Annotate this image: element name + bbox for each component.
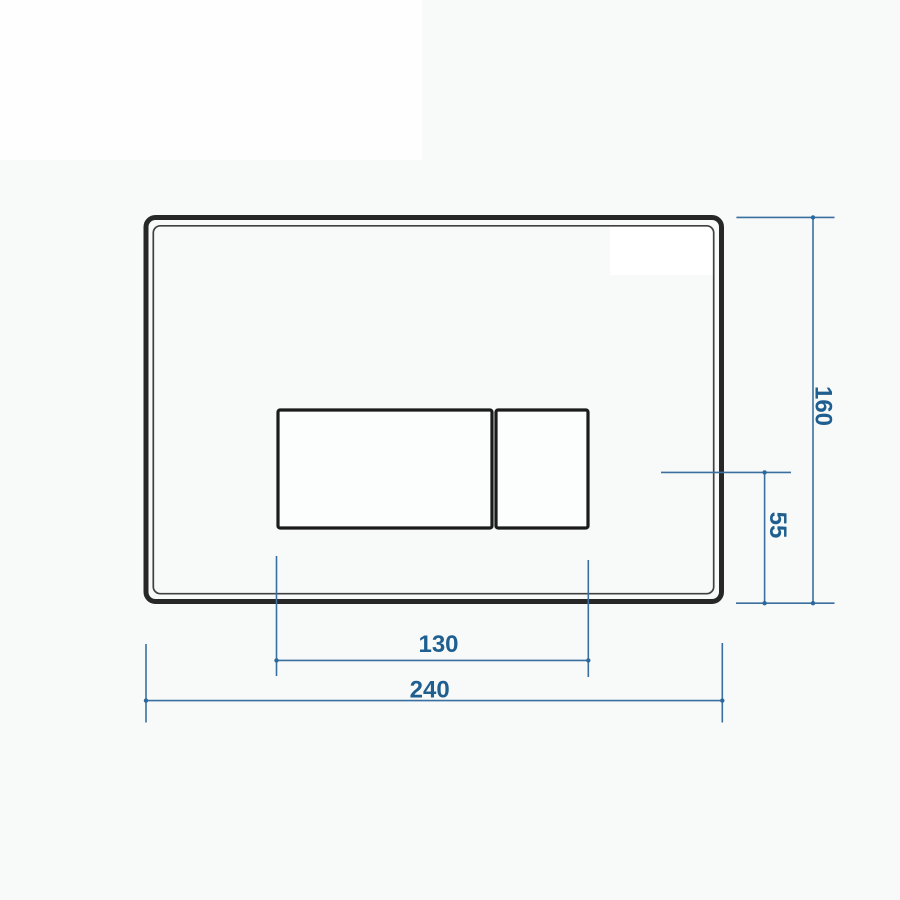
svg-text:130: 130 bbox=[418, 631, 458, 658]
svg-text:55: 55 bbox=[764, 512, 791, 539]
svg-text:240: 240 bbox=[410, 676, 450, 703]
svg-text:160: 160 bbox=[810, 386, 837, 426]
